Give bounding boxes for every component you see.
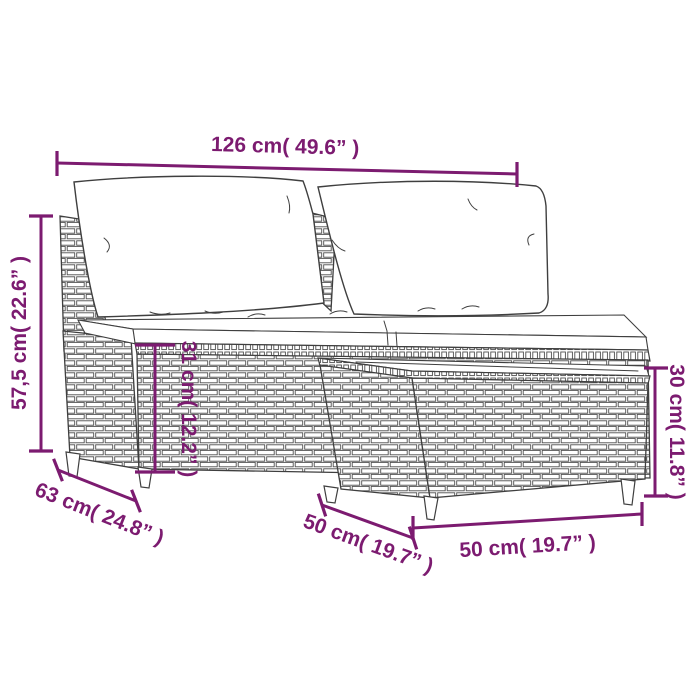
dim-label-total-height: 57,5 cm( 22.6” ) xyxy=(8,256,31,410)
dim-label-sofa-depth: 63 cm( 24.8” ) xyxy=(32,478,168,549)
dim-label-seat-height: 31 cm( 12.2” ) xyxy=(177,341,200,478)
ottoman xyxy=(318,358,650,520)
dim-ottoman-width: 50 cm( 19.7” ) xyxy=(413,502,642,562)
ottoman-leg xyxy=(324,486,338,503)
dim-label-ottoman-width: 50 cm( 19.7” ) xyxy=(459,531,597,562)
dim-ottoman-depth: 50 cm( 19.7” ) xyxy=(300,494,436,578)
ottoman-leg xyxy=(621,479,635,505)
back-cushion-left xyxy=(74,176,324,317)
dim-total-height: 57,5 cm( 22.6” ) xyxy=(8,216,53,451)
ottoman-front-face xyxy=(412,378,648,498)
diagram-canvas: 126 cm( 49.6” ) 57,5 cm( 22.6” ) 31 cm( … xyxy=(0,0,700,700)
back-cushion-right xyxy=(318,181,548,316)
dim-ottoman-height: 30 cm( 11.8” ) xyxy=(644,364,688,499)
dim-label-total-width: 126 cm( 49.6” ) xyxy=(211,133,360,160)
product-dimension-diagram: 126 cm( 49.6” ) 57,5 cm( 22.6” ) 31 cm( … xyxy=(0,0,700,700)
sofa-base-left-side xyxy=(63,331,139,469)
ottoman-leg xyxy=(424,496,438,520)
dim-label-ottoman-height: 30 cm( 11.8” ) xyxy=(665,364,688,499)
sofa-leg xyxy=(138,467,152,488)
